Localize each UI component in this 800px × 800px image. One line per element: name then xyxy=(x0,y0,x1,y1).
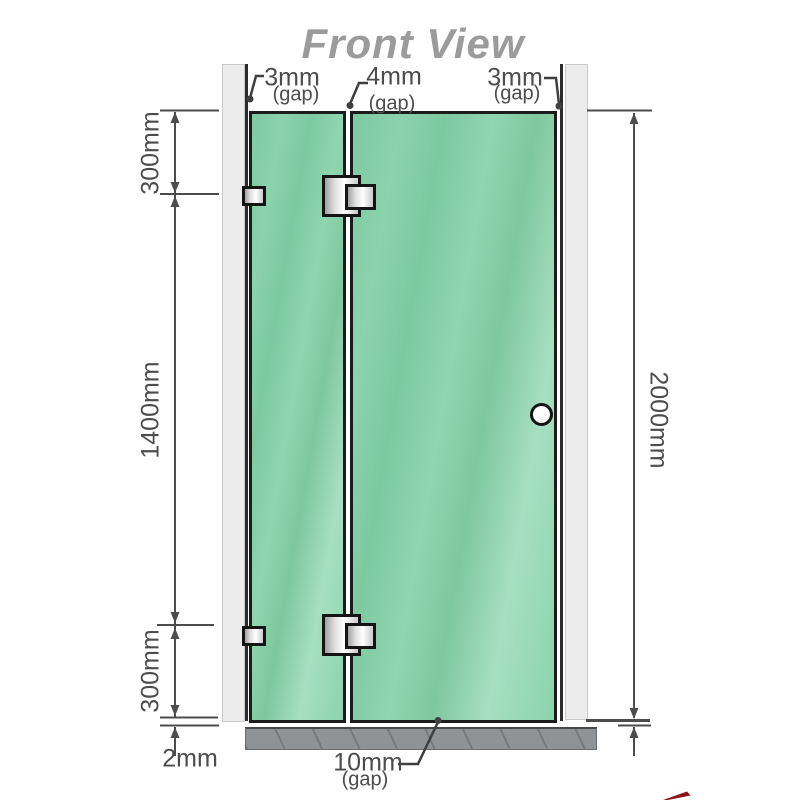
hinge-bottom-clamp xyxy=(345,623,376,649)
left-wall xyxy=(222,64,245,722)
gap-sublabel-middle: (gap) xyxy=(369,93,416,116)
red-watermark-mark xyxy=(663,792,691,800)
left-wall-edge-line xyxy=(245,64,248,721)
front-view-diagram: Front View xyxy=(0,0,800,800)
shower-base xyxy=(245,727,597,750)
door-glass-panel xyxy=(350,111,557,723)
right-wall-edge-line xyxy=(560,64,563,721)
dimension-label-bottom-300: 300mm xyxy=(137,629,166,712)
right-dimension-lines xyxy=(586,111,652,757)
gap-sublabel-right: (gap) xyxy=(494,83,541,106)
wall-bracket-bottom xyxy=(242,626,266,646)
dimension-label-height-2000: 2000mm xyxy=(644,371,673,468)
gap-label-middle: 4mm xyxy=(366,63,422,92)
bottom-gap-sublabel: (gap) xyxy=(342,769,389,792)
wall-bracket-top xyxy=(242,186,266,206)
hinge-top-clamp xyxy=(345,184,376,210)
dimension-label-middle-1400: 1400mm xyxy=(137,361,166,458)
page-title: Front View xyxy=(301,20,524,68)
right-wall xyxy=(565,64,588,720)
door-knob xyxy=(530,403,553,426)
dimension-label-top-300: 300mm xyxy=(137,111,166,194)
gap-sublabel-left: (gap) xyxy=(273,84,320,107)
left-dimension-lines xyxy=(157,111,219,757)
dimension-label-floor-gap: 2mm xyxy=(162,745,218,774)
